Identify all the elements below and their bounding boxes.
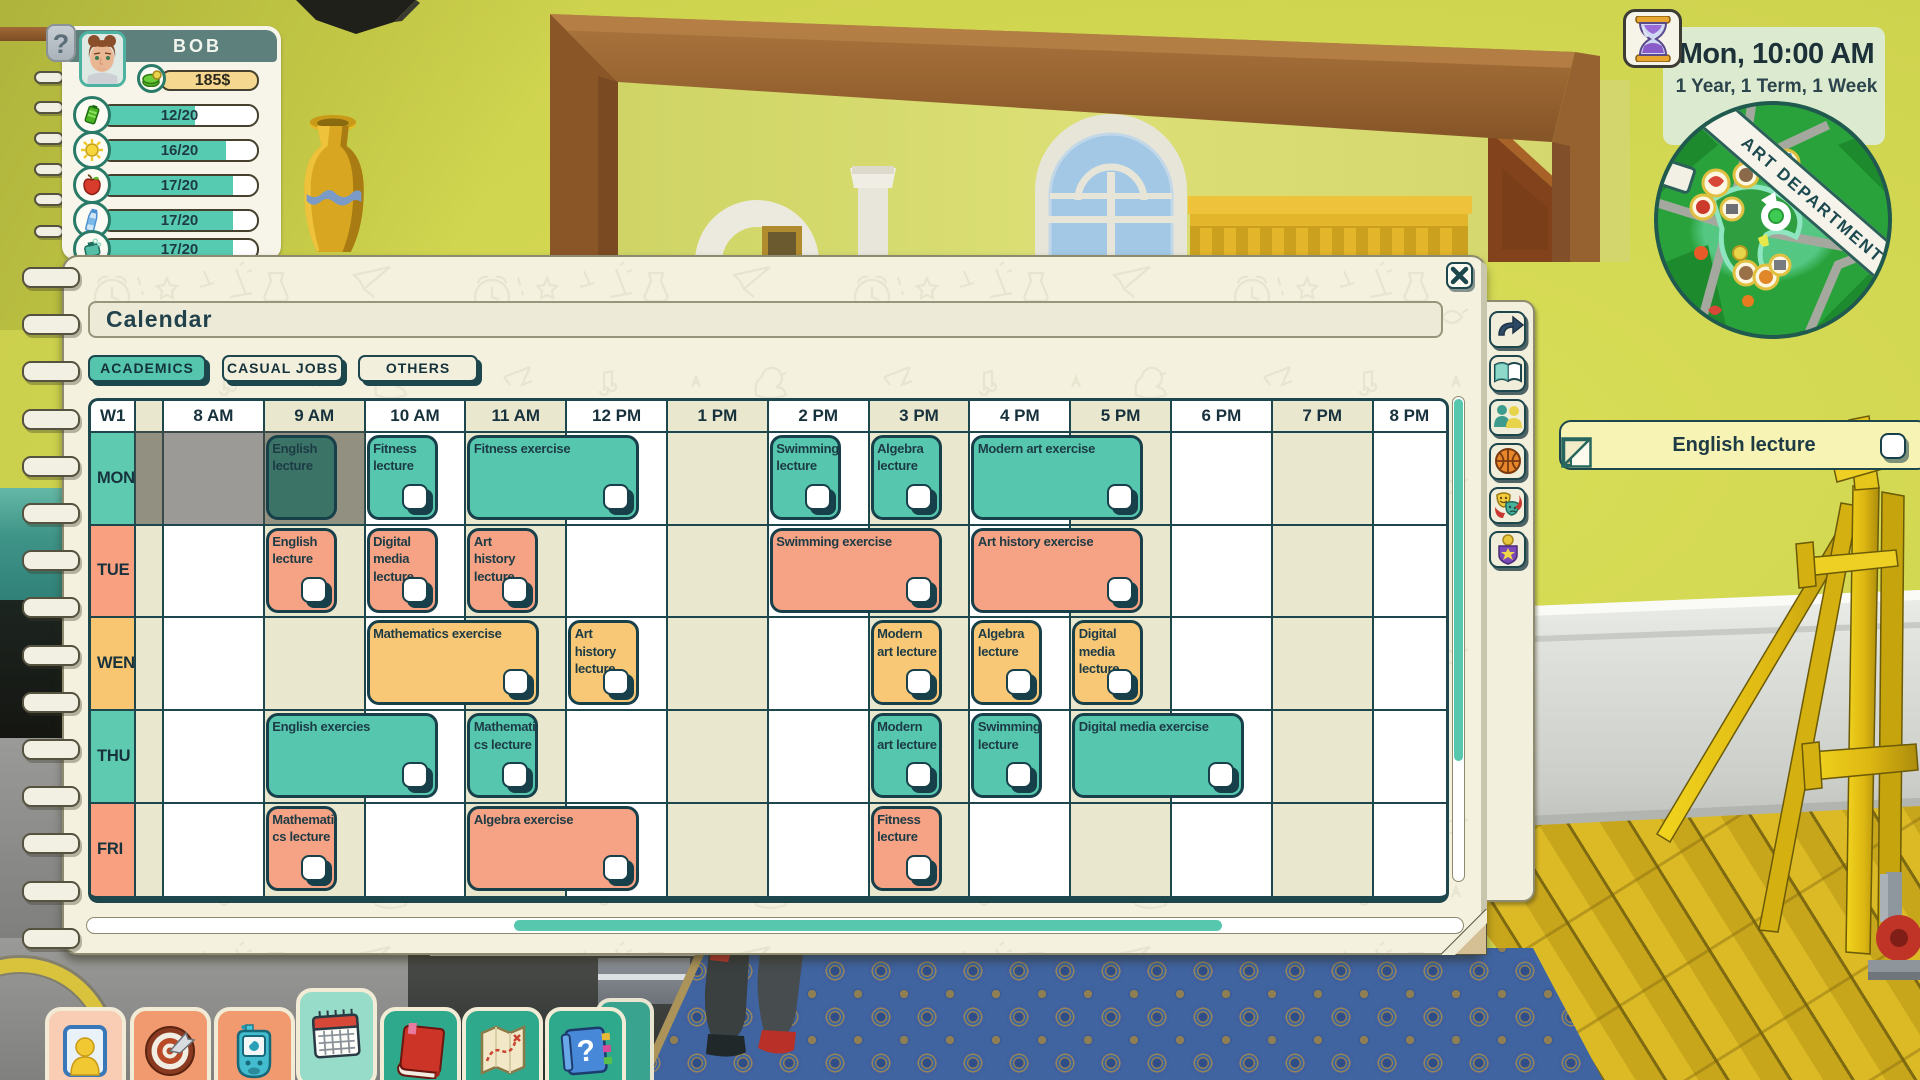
svg-text:?: ?	[575, 1034, 596, 1068]
